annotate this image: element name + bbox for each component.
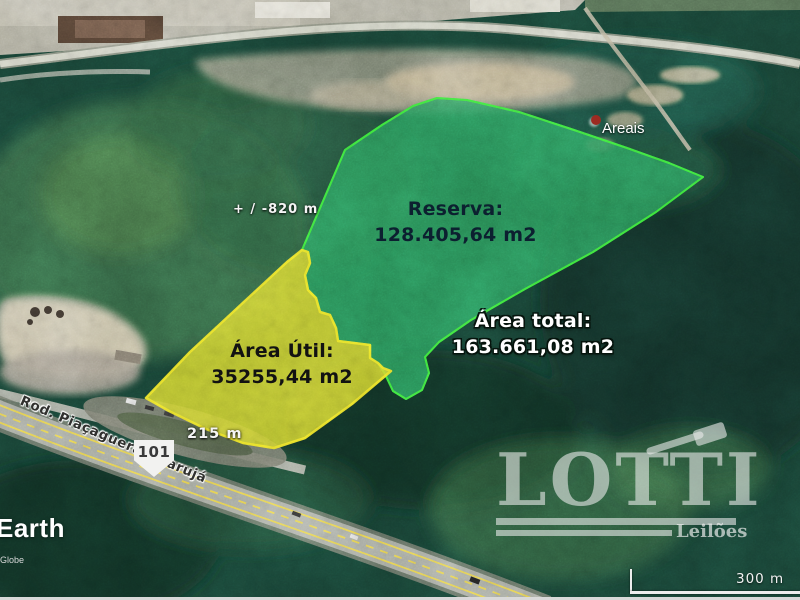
reserva-label: Reserva: 128.405,64 m2 xyxy=(348,196,563,248)
place-marker-label: Areais xyxy=(602,120,645,137)
depth-measurement: + / -820 m xyxy=(233,202,318,217)
area-total-title: Área total: xyxy=(428,308,638,334)
lotti-brand-text: LOTTI xyxy=(496,444,763,516)
area-util-title: Área Útil: xyxy=(182,338,382,364)
lotti-underline xyxy=(496,530,672,536)
lotti-tagline: Leilões xyxy=(676,521,747,542)
scale-bar-label: 300 m xyxy=(736,571,784,587)
place-marker-dot xyxy=(591,115,601,125)
area-total-area-value: 163.661,08 m2 xyxy=(428,334,638,360)
scale-bar-tick xyxy=(630,569,632,593)
lotti-watermark: LOTTI Leilões xyxy=(494,420,744,550)
reserva-area-value: 128.405,64 m2 xyxy=(348,222,563,248)
front-measurement: 215 m xyxy=(187,426,242,442)
reserva-title: Reserva: xyxy=(348,196,563,222)
earth-logo: Earth xyxy=(0,513,65,544)
area-total-label: Área total: 163.661,08 m2 xyxy=(428,308,638,360)
road-shield-number: 101 xyxy=(138,443,171,461)
scale-bar-line xyxy=(630,591,800,594)
area-util-area-value: 35255,44 m2 xyxy=(182,364,382,390)
area-util-label: Área Útil: 35255,44 m2 xyxy=(182,338,382,390)
imagery-attribution: Globe xyxy=(0,555,24,565)
auction-map-image: Reserva: 128.405,64 m2 Área Útil: 35255,… xyxy=(0,0,800,600)
